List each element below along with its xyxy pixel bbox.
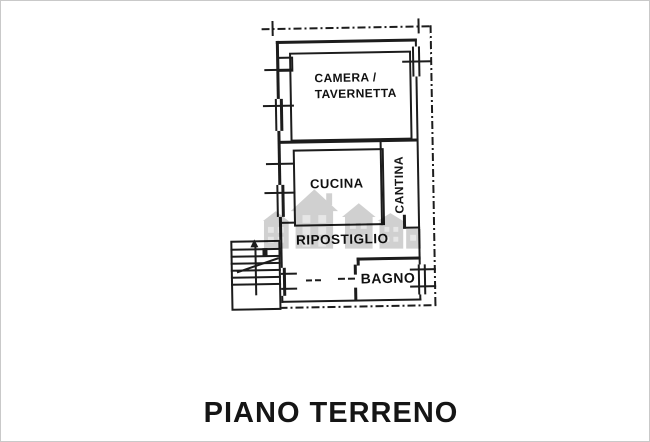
bagno-left-wall-lower bbox=[354, 288, 357, 301]
door-swing-dash bbox=[348, 278, 355, 280]
wall-tick bbox=[271, 21, 273, 36]
room-label-bagno: BAGNO bbox=[356, 269, 420, 286]
outer-wall-right bbox=[414, 38, 421, 300]
outer-wall-bottom bbox=[280, 298, 421, 303]
window-symbol bbox=[213, 14, 443, 18]
outer-wall-top bbox=[276, 38, 417, 43]
floorplan-page: CAMERA / TAVERNETTA CUCINA CANTINA RIPOS… bbox=[0, 0, 650, 442]
door-swing-dash bbox=[306, 279, 312, 281]
window-symbol bbox=[213, 14, 443, 18]
window-symbol bbox=[213, 14, 443, 18]
bagno-wall-jog bbox=[357, 258, 360, 266]
door-swing-dash bbox=[315, 279, 321, 281]
door-swing-dash bbox=[338, 278, 345, 280]
floor-plan: CAMERA / TAVERNETTA CUCINA CANTINA RIPOS… bbox=[213, 14, 448, 318]
stair-direction-arrow-icon bbox=[250, 239, 258, 247]
window-symbol bbox=[213, 14, 443, 18]
stair-marker bbox=[262, 248, 267, 256]
boundary-line-top bbox=[262, 25, 432, 30]
window-symbol bbox=[213, 14, 443, 18]
bagno-top-wall bbox=[357, 256, 421, 260]
wall-tick bbox=[417, 18, 419, 33]
wall-tick bbox=[266, 163, 294, 165]
staircase bbox=[213, 14, 443, 18]
plan-title: PIANO TERRENO bbox=[7, 397, 650, 430]
room-label-camera-tavernetta: CAMERA / TAVERNETTA bbox=[314, 70, 415, 103]
buildings-skyline-logo-icon bbox=[263, 187, 421, 249]
boundary-line-right bbox=[430, 25, 436, 306]
